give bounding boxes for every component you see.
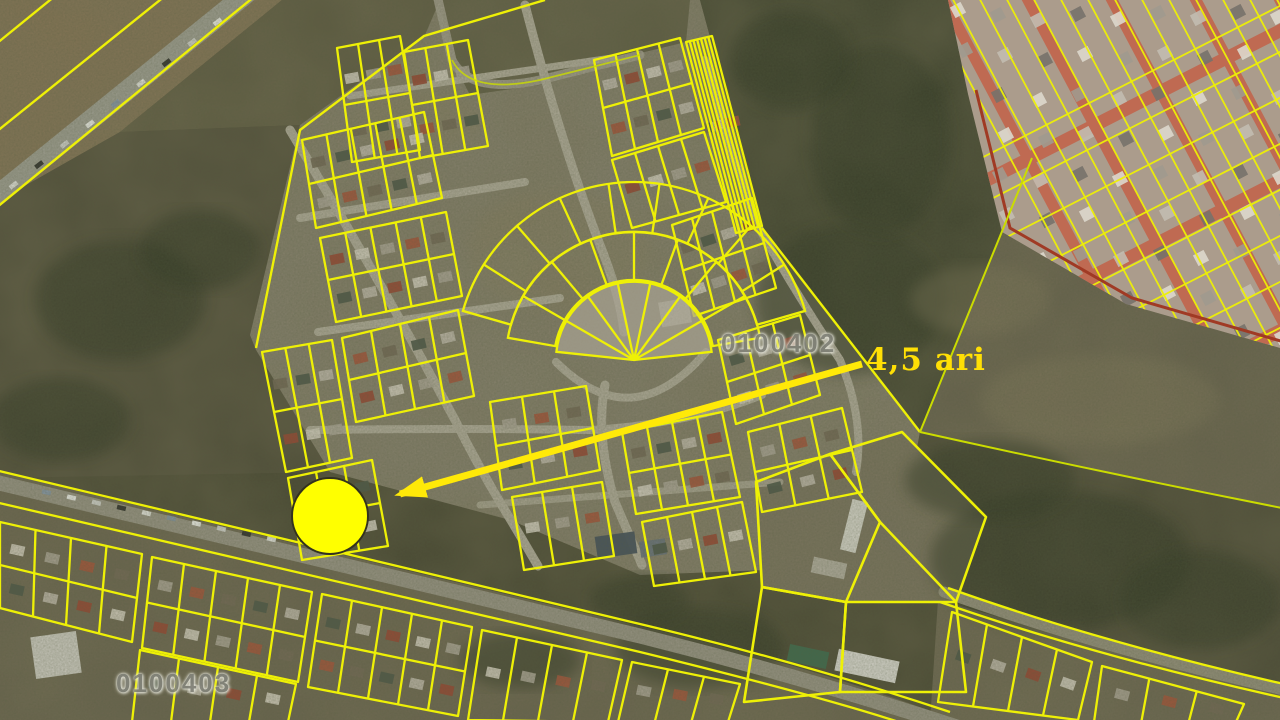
parcel-marker[interactable] — [292, 478, 368, 554]
area-size-label: 4,5 ari — [866, 342, 986, 378]
cadastral-sector-code-2: 0100403 — [116, 668, 231, 699]
cadastral-sector-code-1: 0100402 — [721, 328, 836, 359]
map-viewport[interactable]: 4,5 ari 0100402 0100403 — [0, 0, 1280, 720]
satellite-map-canvas[interactable] — [0, 0, 1280, 720]
